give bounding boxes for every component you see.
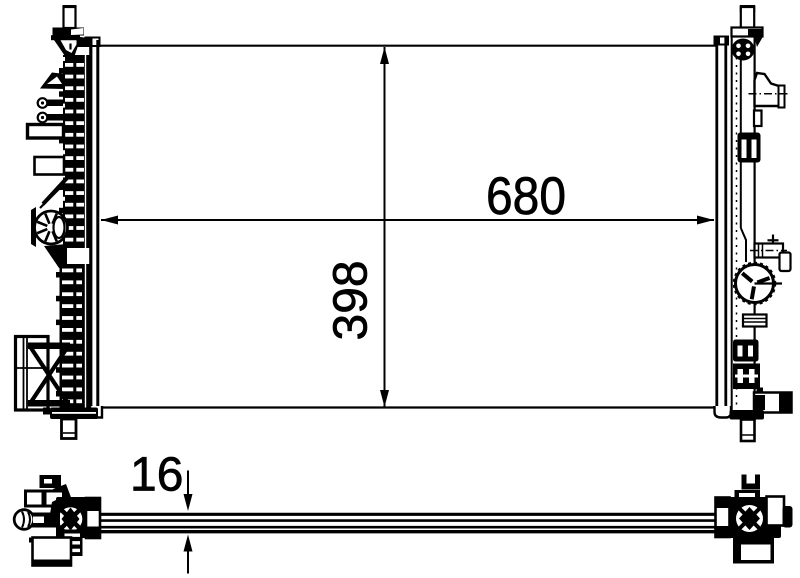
- svg-text:16: 16: [130, 449, 183, 502]
- svg-text:680: 680: [486, 167, 566, 226]
- svg-text:398: 398: [325, 260, 378, 340]
